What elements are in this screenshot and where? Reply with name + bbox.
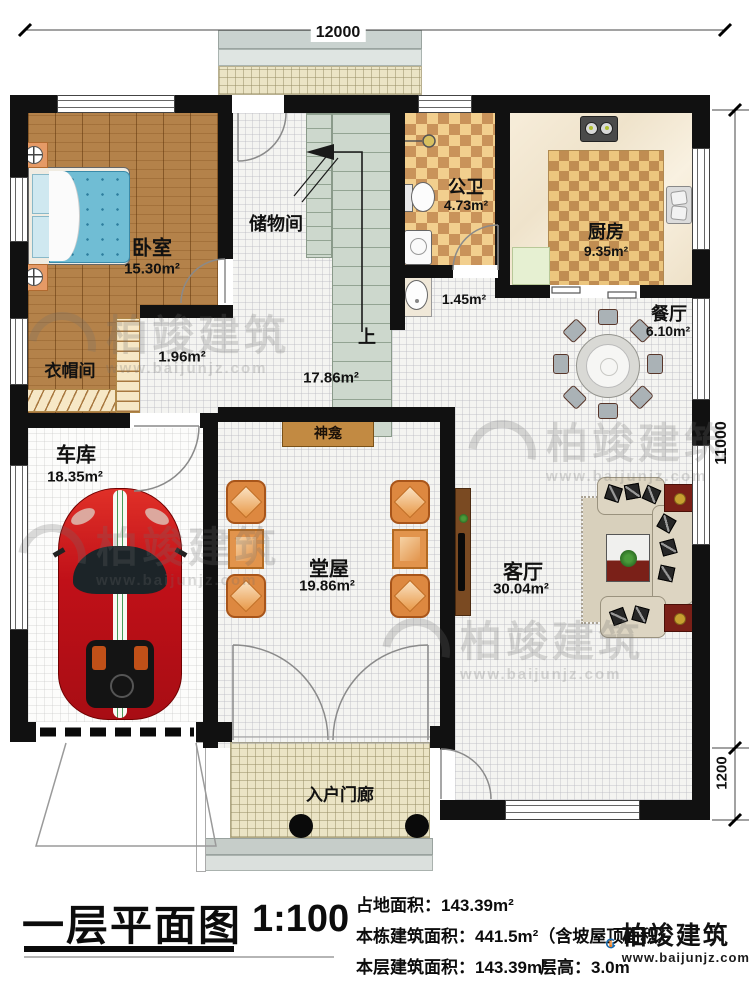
dining-chair: [647, 354, 663, 374]
stairs-landing: [306, 113, 332, 258]
hall-side-table: [228, 529, 264, 569]
wall-mainhall-left: [203, 413, 218, 748]
label-bathroom-area: 4.73m²: [444, 197, 488, 213]
brand-logo: 柏竣建筑 www.baijunjz.com: [606, 910, 750, 978]
label-storage: 储物间: [249, 210, 303, 236]
sofa-right: [652, 505, 694, 605]
pillow: [32, 174, 50, 214]
wall-bath-left: [390, 113, 405, 330]
stove: [580, 116, 618, 142]
label-garage: 车库: [56, 439, 96, 468]
hall-armchair: [226, 480, 266, 524]
wall-mainhall-right: [440, 407, 455, 750]
door-opening-garage-vest: [130, 413, 200, 428]
title-underline: [24, 946, 234, 952]
title-underline-thin: [24, 956, 334, 958]
door-opening-bath: [453, 265, 498, 278]
kitchen-counter-board: [512, 247, 550, 285]
plant: [459, 514, 468, 523]
porch-step: [205, 855, 433, 871]
dining-chair: [598, 403, 618, 419]
door-opening-living: [440, 750, 455, 800]
dim-right-porch: 1200: [714, 756, 731, 789]
label-bedroom-area: 15.30m²: [124, 261, 180, 278]
stairs-flight: [332, 113, 392, 437]
brand-logo-icon: [606, 915, 616, 973]
sofa-chaise: [600, 596, 666, 638]
porch-side-step: [196, 742, 206, 872]
car-engine-cover: [86, 640, 154, 708]
window-bedroom-top: [57, 95, 175, 113]
terrace-step: [218, 49, 422, 66]
label-bath-lobby-area: 1.45m²: [442, 291, 486, 307]
floor-plan: 神龛: [0, 0, 750, 981]
window-bath-top: [418, 95, 472, 113]
hall-side-table: [392, 529, 428, 569]
window-garage-left: [10, 465, 28, 630]
coffee-table: [606, 534, 650, 582]
porch-gap: [430, 748, 440, 800]
brand-name: 柏竣建筑: [622, 923, 750, 951]
toilet-bowl: [411, 182, 435, 212]
porch-side: [203, 748, 230, 840]
label-hall-area: 17.86m²: [303, 370, 359, 387]
dining-table: [576, 334, 640, 398]
door-opening-bedroom: [218, 259, 233, 305]
label-main-hall-area: 19.86m²: [299, 578, 355, 595]
label-bathroom: 公卫: [448, 173, 484, 199]
window-living-bottom: [505, 800, 640, 820]
kitchen-sink: [666, 186, 692, 224]
garage-door-opening: [36, 722, 196, 742]
cloak-rack: [20, 389, 116, 412]
porch-column: [405, 814, 429, 838]
window-living-right: [692, 445, 710, 545]
label-stairs-up: 上: [358, 323, 376, 349]
bed: [28, 167, 130, 265]
window-kitchen-right: [692, 148, 710, 250]
floor-area: 本层建筑面积：143.39m²: [356, 953, 548, 978]
shrine-table: 神龛: [282, 419, 374, 447]
brand-url: www.baijunjz.com: [622, 950, 750, 965]
label-vestibule-area: 1.96m²: [158, 349, 206, 366]
porch-column: [289, 814, 313, 838]
plan-title: 一层平面图: [22, 892, 242, 953]
label-kitchen: 厨房: [588, 218, 624, 244]
terrace-tile: [218, 66, 422, 95]
label-kitchen-area: 9.35m²: [584, 243, 628, 259]
hall-armchair: [390, 480, 430, 524]
tv: [458, 533, 465, 591]
window-dining-right: [692, 298, 710, 400]
dining-chair: [553, 354, 569, 374]
label-dining-area: 6.10m²: [646, 323, 690, 339]
label-bedroom: 卧室: [132, 232, 172, 261]
dim-top: 12000: [311, 24, 366, 42]
wall-mainhall-top: [218, 407, 455, 422]
driveway-area: [10, 742, 203, 872]
pillow: [32, 216, 50, 258]
label-living-area: 30.04m²: [493, 581, 549, 598]
hall-armchair: [390, 574, 430, 618]
car: [58, 488, 182, 720]
washing-machine: [404, 230, 432, 265]
plan-scale: 1:100: [252, 898, 349, 941]
door-opening-storage: [232, 95, 284, 113]
hall-armchair: [226, 574, 266, 618]
land-area: 占地面积：143.39m²: [356, 891, 514, 916]
wall-bath-kitchen: [495, 113, 510, 285]
shrine-label: 神龛: [314, 423, 342, 443]
label-cloakroom: 衣帽间: [45, 357, 96, 382]
label-porch: 入户门廊: [306, 781, 374, 806]
wall-bedroom-bottom: [140, 305, 233, 318]
porch-step: [205, 838, 433, 855]
door-opening-kitchen: [550, 285, 640, 298]
label-garage-area: 18.35m²: [47, 469, 103, 486]
wash-basin: [405, 280, 428, 310]
window-cloak-left: [10, 318, 28, 385]
window-bedroom-left: [10, 177, 28, 242]
cloak-rack: [116, 318, 140, 413]
dining-chair: [598, 309, 618, 325]
dim-right-main: 11000: [713, 421, 731, 465]
